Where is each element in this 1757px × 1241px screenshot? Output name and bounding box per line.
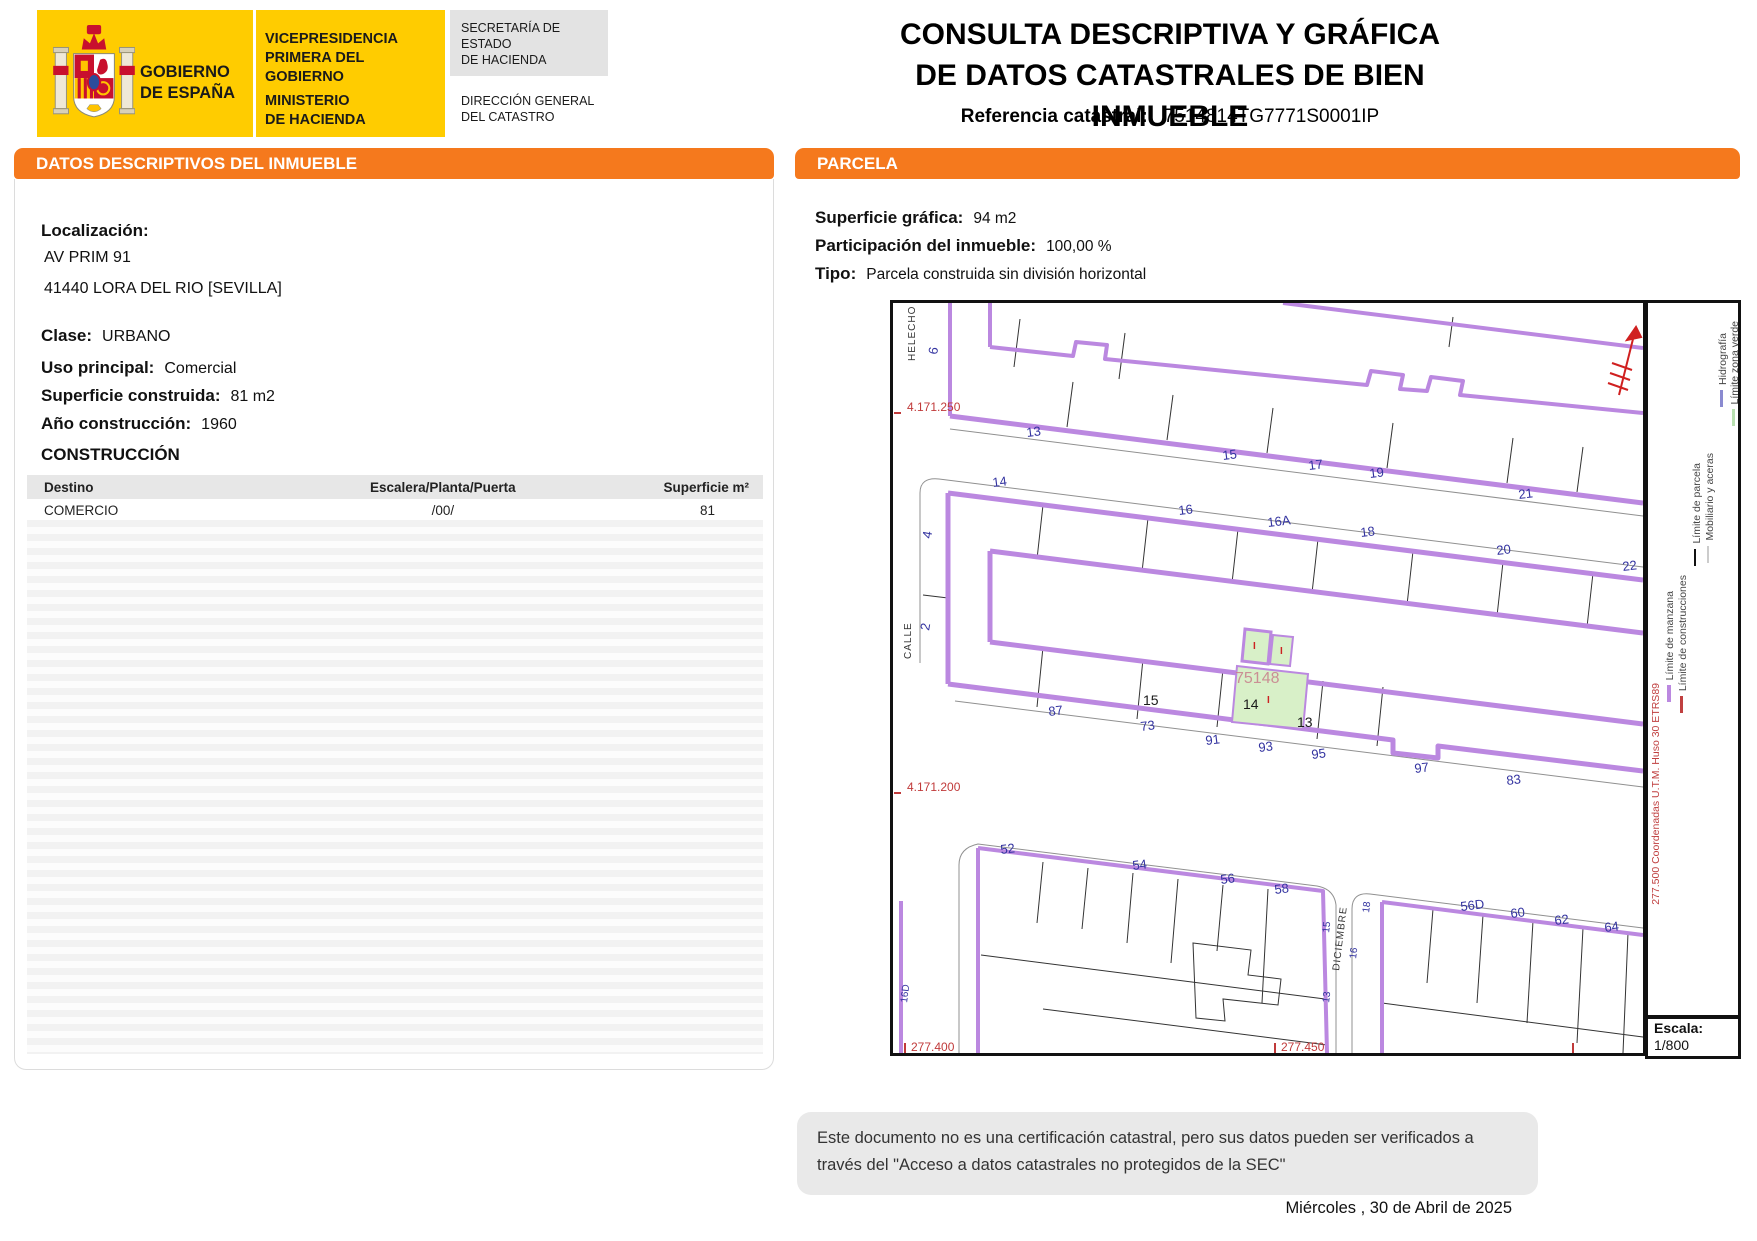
map-label: 277.450 — [1281, 1040, 1325, 1053]
gobierno-title: GOBIERNO DE ESPAÑA — [140, 62, 235, 104]
legend-swatch — [1720, 390, 1723, 407]
construccion-table: Destino Escalera/Planta/Puerta Superfici… — [27, 475, 763, 521]
address-line-1: AV PRIM 91 — [44, 249, 131, 267]
datos-descriptivos-panel: Localización: AV PRIM 91 41440 LORA DEL … — [14, 179, 774, 1070]
legend-item: Límite zona verde — [1729, 321, 1741, 404]
map-label: 60 — [1510, 904, 1526, 921]
disclaimer-line-1: Este documento no es una certificación c… — [817, 1125, 1518, 1152]
map-label: 56 — [1220, 870, 1236, 887]
map-label: 75148 — [1235, 670, 1280, 687]
map-label: 52 — [1000, 840, 1016, 857]
legend-swatch — [1694, 549, 1696, 566]
localizacion-label: Localización: — [41, 221, 149, 241]
map-label: 62 — [1554, 911, 1570, 928]
map-label: 18 — [1361, 901, 1373, 914]
cadastral-reference: Referencia catastral:7514814TG7771S0001I… — [860, 106, 1480, 128]
section-title: PARCELA — [817, 154, 898, 173]
north-arrow-icon — [1608, 327, 1641, 395]
legend-item: Límite de construcciones — [1677, 575, 1689, 691]
map-legend: Límite de manzanaLímite de construccione… — [1645, 300, 1741, 1018]
col-escalera-planta-puerta: Escalera/Planta/Puerta — [321, 475, 564, 499]
legend-item-label: Hidrografía — [1717, 333, 1729, 385]
map-label: 16 — [1178, 501, 1194, 518]
disclaimer-box: Este documento no es una certificación c… — [797, 1112, 1538, 1195]
map-label: 16 — [1348, 947, 1360, 960]
cell-escalera: /00/ — [321, 499, 564, 521]
section-header-parcela: PARCELA — [795, 148, 1740, 179]
map-label: HELECHO — [907, 306, 918, 361]
map-label: 56D — [1460, 896, 1486, 914]
legend-item-label: Límite zona verde — [1729, 321, 1741, 404]
table-row: COMERCIO /00/ 81 — [27, 499, 763, 521]
map-label: 13 — [1297, 714, 1313, 730]
legend-swatch — [1667, 685, 1671, 702]
cell-destino: COMERCIO — [27, 499, 321, 521]
field-clase: Clase:URBANO — [41, 326, 170, 346]
map-label: 64 — [1604, 918, 1620, 935]
map-label: 4.171.250 — [907, 400, 961, 414]
scale-label: Escala: — [1654, 1020, 1703, 1036]
legend-item-label: Límite de manzana — [1664, 591, 1676, 680]
map-label: 14 — [992, 473, 1008, 490]
map-label: 14 — [1243, 696, 1259, 712]
map-label: 16A — [1267, 512, 1292, 530]
col-superficie: Superficie m² — [564, 475, 763, 499]
map-label: 73 — [1140, 717, 1156, 734]
map-label: 83 — [1506, 771, 1522, 788]
map-label: 93 — [1258, 738, 1274, 755]
section-title: DATOS DESCRIPTIVOS DEL INMUEBLE — [36, 154, 357, 173]
map-label: 58 — [1274, 880, 1290, 897]
government-logo: GOBIERNO DE ESPAÑA VICEPRESIDENCIA PRIME… — [37, 10, 445, 137]
map-label: 6 — [925, 346, 941, 356]
scale-box: Escala: 1/800 — [1645, 1016, 1741, 1059]
legend-swatch — [1680, 696, 1683, 713]
field-superficie-grafica: Superficie gráfica:94 m2 — [815, 208, 1016, 228]
document-date: Miércoles , 30 de Abril de 2025 — [1100, 1199, 1512, 1218]
map-label: 54 — [1132, 856, 1148, 873]
map-label: 95 — [1311, 745, 1327, 762]
secretaria-box: SECRETARÍA DE ESTADO DE HACIENDA — [450, 10, 608, 76]
field-superficie-construida: Superficie construida:81 m2 — [41, 386, 275, 406]
map-label: 21 — [1518, 485, 1534, 502]
vicepresidencia-title: VICEPRESIDENCIA PRIMERA DEL GOBIERNO — [265, 30, 445, 87]
map-labels: HELECHO64.171.2504.171.200277.400277.450… — [899, 306, 1638, 1053]
legend-item: Hidrografía — [1717, 333, 1729, 385]
legend-swatch — [1707, 546, 1709, 563]
legend-item-label: Límite de parcela — [1691, 463, 1703, 544]
map-label: 15 — [1143, 692, 1159, 708]
address-line-2: 41440 LORA DEL RIO [SEVILLA] — [44, 280, 282, 298]
legend-item: Límite de parcela — [1691, 463, 1703, 544]
direccion-general-title: DIRECCIÓN GENERAL DEL CATASTRO — [461, 93, 594, 125]
disclaimer-line-2: través del "Acceso a datos catastrales n… — [817, 1152, 1518, 1179]
construccion-title: CONSTRUCCIÓN — [41, 445, 180, 465]
map-label: 17 — [1308, 456, 1324, 473]
scale-value: 1/800 — [1654, 1037, 1689, 1053]
map-label: DICIEMBRE — [1331, 906, 1350, 971]
section-header-datos-descriptivos: DATOS DESCRIPTIVOS DEL INMUEBLE — [14, 148, 774, 179]
field-tipo: Tipo:Parcela construida sin división hor… — [815, 264, 1146, 284]
map-label: 87 — [1048, 702, 1064, 719]
legend-item-label: Mobiliario y aceras — [1704, 453, 1716, 541]
map-label: 13 — [1026, 423, 1042, 440]
map-label: I — [1267, 695, 1270, 706]
map-label: I — [1253, 641, 1256, 652]
empty-table-rows — [27, 520, 763, 1054]
map-label: 20 — [1496, 541, 1512, 558]
field-uso-principal: Uso principal:Comercial — [41, 358, 236, 378]
map-label: 16D — [899, 984, 912, 1004]
map-label: CALLE — [903, 622, 914, 659]
cell-superficie: 81 — [564, 499, 763, 521]
ministerio-title: MINISTERIO DE HACIENDA — [265, 92, 366, 130]
spain-coat-of-arms-icon — [53, 23, 135, 125]
cadastral-map-drawing: HELECHO64.171.2504.171.200277.400277.450… — [893, 303, 1643, 1053]
map-label: I — [1280, 646, 1283, 657]
field-participacion: Participación del inmueble:100,00 % — [815, 236, 1112, 256]
cadastral-reference-value: 7514814TG7771S0001IP — [1164, 106, 1380, 127]
map-label: 15 — [1321, 921, 1333, 934]
cadastral-map: HELECHO64.171.2504.171.200277.400277.450… — [890, 300, 1646, 1056]
cadastral-reference-label: Referencia catastral: — [961, 106, 1148, 127]
map-label: 22 — [1622, 557, 1638, 574]
map-label: 97 — [1414, 759, 1430, 776]
map-label: 91 — [1205, 731, 1221, 748]
map-label: 277.400 — [911, 1040, 955, 1053]
legend-item: Mobiliario y aceras — [1704, 453, 1716, 541]
legend-item: Límite de manzana — [1664, 591, 1676, 680]
col-destino: Destino — [27, 475, 321, 499]
map-label: 4 — [919, 530, 935, 540]
map-label: 15 — [1222, 446, 1238, 463]
map-label: 19 — [1369, 464, 1385, 481]
map-label: 18 — [1360, 523, 1376, 540]
map-label: 4.171.200 — [907, 780, 961, 794]
utm-coordinates-note: 277.500 Coordenadas U.T.M. Huso 30 ETRS8… — [1650, 683, 1662, 905]
legend-item-label: Límite de construcciones — [1677, 575, 1689, 691]
map-label: 13 — [1321, 991, 1333, 1004]
table-header-row: Destino Escalera/Planta/Puerta Superfici… — [27, 475, 763, 499]
legend-swatch — [1732, 409, 1735, 426]
map-label: 2 — [917, 622, 933, 632]
logo-divider — [253, 10, 256, 137]
field-ano-construccion: Año construcción:1960 — [41, 414, 237, 434]
